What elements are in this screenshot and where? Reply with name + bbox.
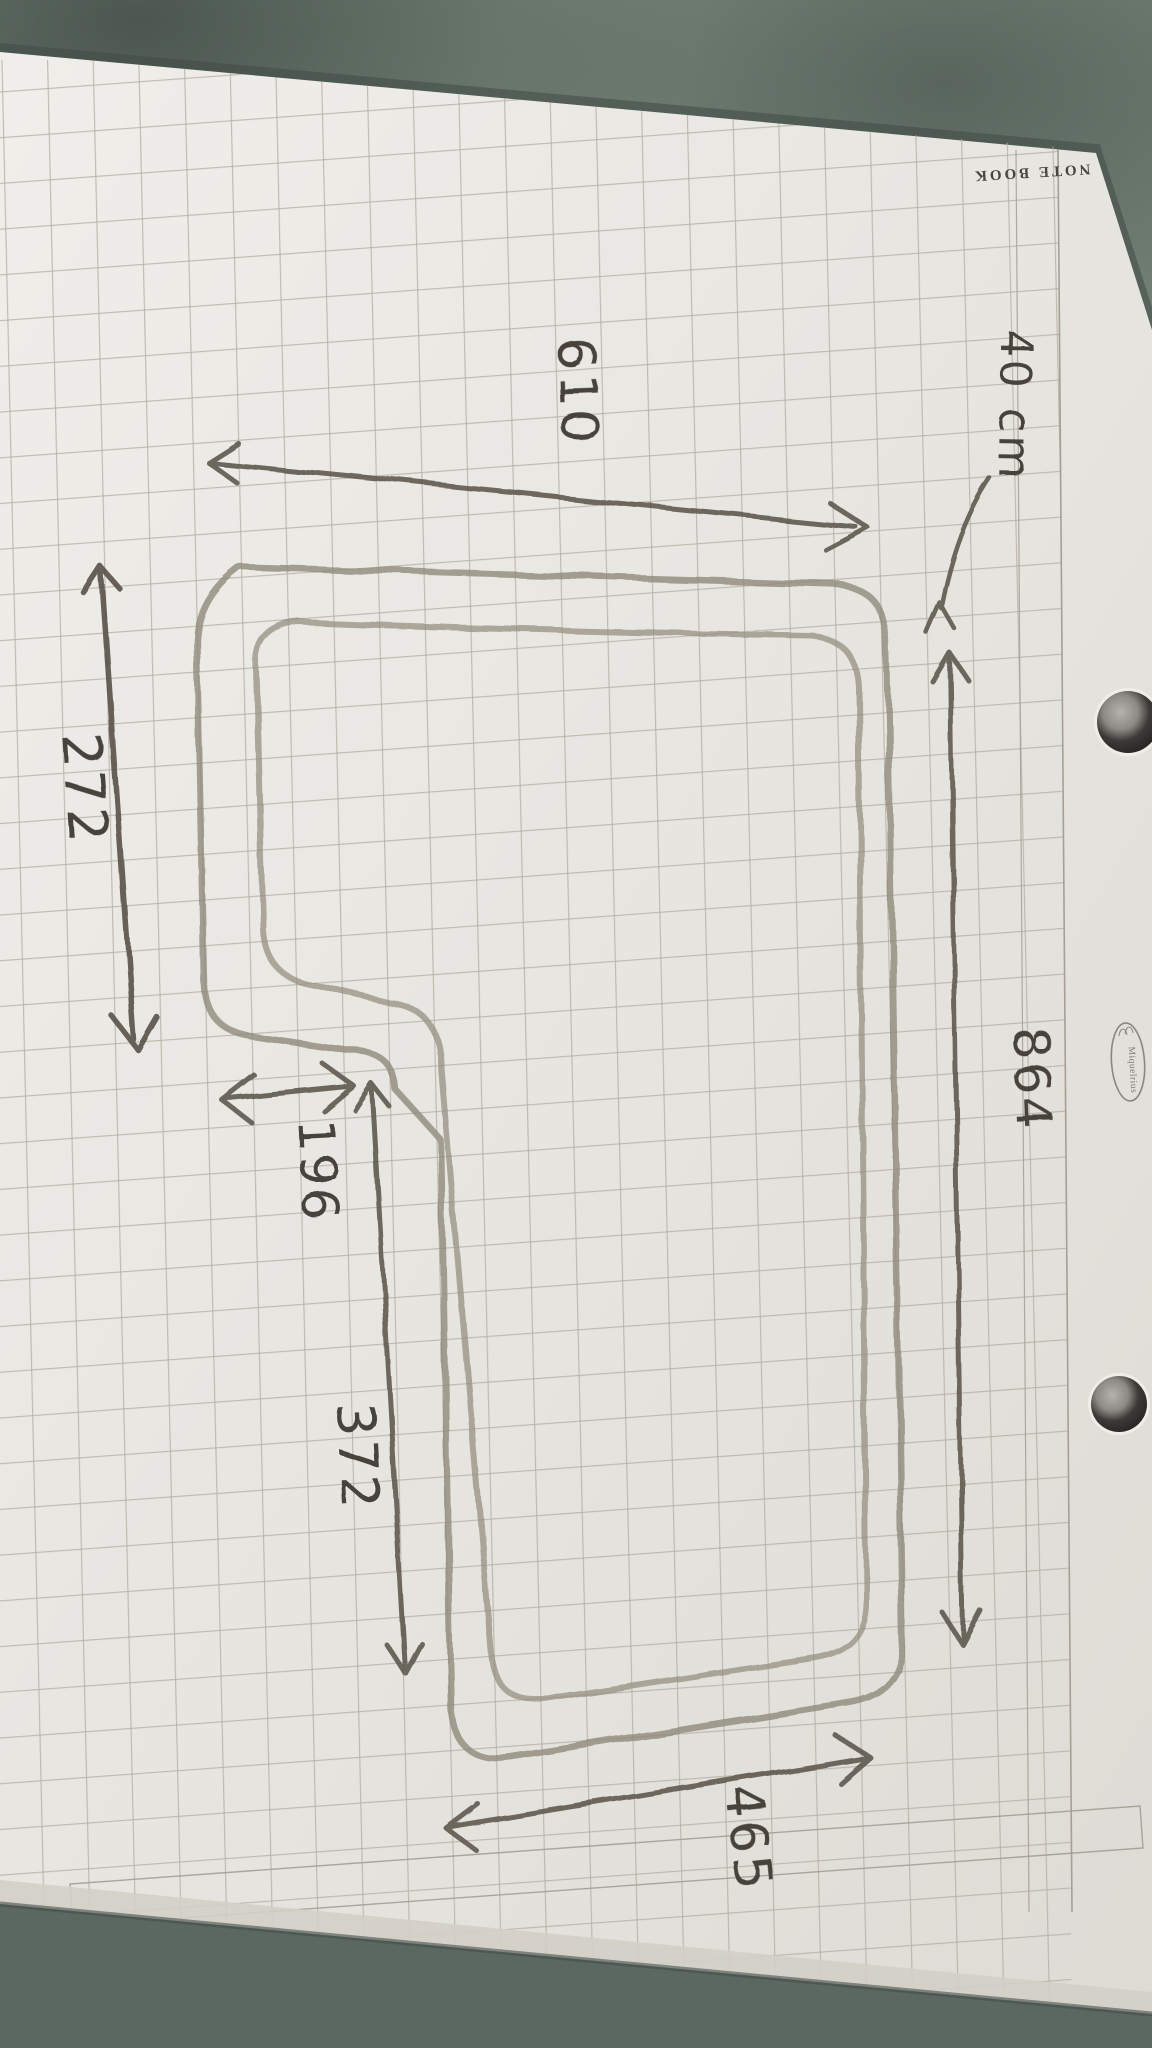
label-right-side: 864 xyxy=(1001,1026,1063,1132)
label-step-width: 196 xyxy=(286,1117,349,1224)
label-upper-left: 272 xyxy=(49,731,120,847)
label-bottom-width: 465 xyxy=(712,1781,783,1895)
scene-svg: NOTE BOOK Miquelrius xyxy=(0,0,1152,2048)
label-unit: 40 cm xyxy=(988,329,1042,482)
label-top-width: 610 xyxy=(545,336,609,446)
photo-of-sketch: NOTE BOOK Miquelrius xyxy=(0,0,1152,2048)
binder-hole-bottom xyxy=(1088,1373,1150,1435)
label-lower-left: 372 xyxy=(324,1401,390,1512)
